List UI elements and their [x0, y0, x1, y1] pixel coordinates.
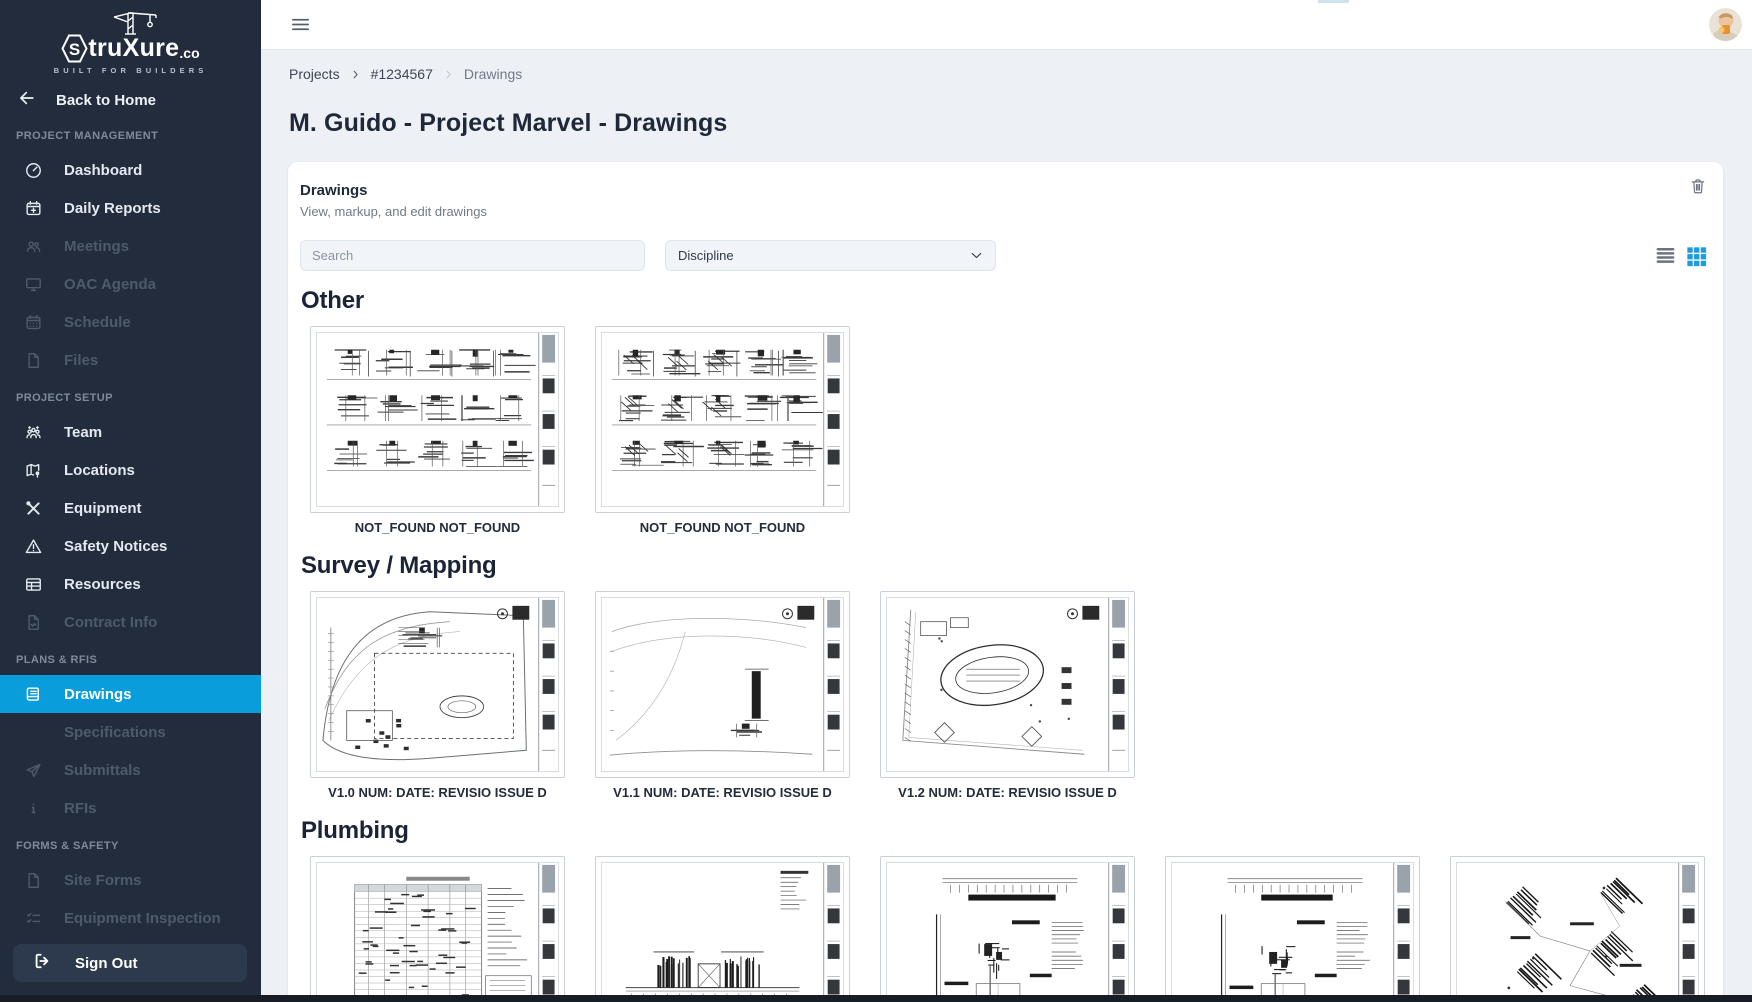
drawings-row [310, 856, 1709, 1002]
section-heading-other: Other [301, 287, 1709, 315]
drawing-item: V1.1 NUM: DATE: REVISIO ISSUE D [595, 591, 850, 801]
drawing-thumbnail[interactable] [310, 591, 565, 778]
list-view-icon[interactable] [1654, 244, 1677, 267]
drawing-label: V1.0 NUM: DATE: REVISIO ISSUE D [310, 785, 565, 801]
drawing-item: NOT_FOUND NOT_FOUND [310, 326, 565, 536]
sidebar-item-label: Drawings [64, 686, 132, 703]
sidebar-item-dashboard[interactable]: Dashboard [0, 151, 261, 189]
sidebar-item-label: Dashboard [64, 162, 142, 179]
sidebar-item-oac-agenda[interactable]: OAC Agenda [0, 265, 261, 303]
drawing-thumbnail[interactable] [1165, 856, 1420, 1002]
drawing-label: NOT_FOUND NOT_FOUND [595, 520, 850, 536]
sidebar-item-label: Locations [64, 462, 135, 479]
hexagon-s-icon: S [61, 34, 88, 63]
drawings-card: Drawings View, markup, and edit drawings… [288, 162, 1723, 1002]
sidebar-item-equipment-inspection[interactable]: Equipment Inspection [0, 899, 261, 937]
sidebar-item-label: Site Forms [64, 872, 142, 889]
sidebar-item-submittals[interactable]: Submittals [0, 751, 261, 789]
drawing-thumbnail[interactable] [880, 856, 1135, 1002]
drawings-row: V1.0 NUM: DATE: REVISIO ISSUE DV1.1 NUM:… [310, 591, 1709, 801]
sidebar-item-locations[interactable]: Locations [0, 451, 261, 489]
sidebar-item-label: Meetings [64, 238, 129, 255]
breadcrumb-drawings[interactable]: Drawings [464, 66, 522, 82]
drawing-thumbnail[interactable] [1450, 856, 1705, 1002]
drawing-thumbnail[interactable] [595, 326, 850, 513]
back-to-home-label: Back to Home [56, 92, 156, 109]
breadcrumb-projects[interactable]: Projects [289, 66, 340, 82]
grid-view-icon[interactable] [1684, 244, 1707, 267]
page-title: M. Guido - Project Marvel - Drawings [289, 109, 1752, 138]
sidebar-item-schedule[interactable]: Schedule [0, 303, 261, 341]
info-icon [23, 798, 43, 818]
sidebar-item-rfis[interactable]: RFIs [0, 789, 261, 827]
drawing-item: NOT_FOUND NOT_FOUND [595, 326, 850, 536]
people-icon [23, 236, 43, 256]
card-title: Drawings [300, 182, 487, 199]
drawing-label: NOT_FOUND NOT_FOUND [310, 520, 565, 536]
drawing-thumbnail[interactable] [595, 856, 850, 1002]
main-area: Projects #1234567 Drawings M. Guido - Pr… [261, 0, 1752, 1002]
drawing-item: V1.2 NUM: DATE: REVISIO ISSUE D [880, 591, 1135, 801]
checklist-icon [23, 908, 43, 928]
sign-out-icon [32, 951, 52, 975]
book-icon [23, 684, 43, 704]
sidebar-nav: PROJECT MANAGEMENTDashboardDaily Reports… [0, 117, 261, 937]
drawings-row: NOT_FOUND NOT_FOUNDNOT_FOUND NOT_FOUND [310, 326, 1709, 536]
hamburger-menu-icon[interactable] [289, 13, 312, 36]
card-subtitle: View, markup, and edit drawings [300, 204, 487, 219]
drawing-item: V1.0 NUM: DATE: REVISIO ISSUE D [310, 591, 565, 801]
top-edge-artifact [1318, 0, 1349, 3]
sidebar: S truXure .co BUILT FOR BUILDERS Back to… [0, 0, 261, 1002]
contract-icon [23, 612, 43, 632]
breadcrumb: Projects #1234567 Drawings [261, 50, 1752, 82]
sidebar-item-site-forms[interactable]: Site Forms [0, 861, 261, 899]
crane-icon [92, 8, 170, 36]
sidebar-item-label: Team [64, 424, 102, 441]
send-icon [23, 760, 43, 780]
sidebar-item-equipment[interactable]: Equipment [0, 489, 261, 527]
spec-icon [23, 722, 43, 742]
brand-tld: .co [179, 45, 199, 61]
chevron-right-icon [349, 68, 362, 81]
sidebar-item-label: Specifications [64, 724, 166, 741]
drawing-item [595, 856, 850, 1002]
sidebar-item-label: Equipment Inspection [64, 910, 221, 927]
bottom-edge-bar [0, 995, 1752, 1002]
calendar-plus-icon [23, 198, 43, 218]
drawing-sections: OtherNOT_FOUND NOT_FOUNDNOT_FOUND NOT_FO… [300, 287, 1709, 1002]
sidebar-item-contract-info[interactable]: Contract Info [0, 603, 261, 641]
sign-out-label: Sign Out [75, 955, 138, 972]
sidebar-item-label: Resources [64, 576, 141, 593]
drawing-item [1165, 856, 1420, 1002]
search-input[interactable] [300, 240, 645, 271]
sidebar-item-label: RFIs [64, 800, 97, 817]
trash-icon[interactable] [1687, 175, 1709, 202]
drawing-item [310, 856, 565, 1002]
warning-icon [23, 536, 43, 556]
monitor-icon [23, 274, 43, 294]
chevron-right-icon [442, 68, 455, 81]
drawing-item [1450, 856, 1705, 1002]
avatar[interactable] [1709, 8, 1742, 41]
drawing-thumbnail[interactable] [310, 326, 565, 513]
sidebar-section-label: PROJECT SETUP [0, 379, 261, 413]
sign-out-button[interactable]: Sign Out [13, 944, 247, 982]
sidebar-section-label: PLANS & RFIS [0, 641, 261, 675]
gauge-icon [23, 160, 43, 180]
brand-name: truXure [88, 34, 179, 63]
discipline-select-label: Discipline [678, 248, 734, 263]
drawing-thumbnail[interactable] [310, 856, 565, 1002]
drawing-label: V1.1 NUM: DATE: REVISIO ISSUE D [595, 785, 850, 801]
sidebar-section-label: PROJECT MANAGEMENT [0, 117, 261, 151]
sidebar-item-label: OAC Agenda [64, 276, 156, 293]
sidebar-item-specifications[interactable]: Specifications [0, 713, 261, 751]
team-icon [23, 422, 43, 442]
sidebar-item-label: Submittals [64, 762, 141, 779]
discipline-select[interactable]: Discipline [665, 240, 996, 271]
section-heading-survey-mapping: Survey / Mapping [301, 552, 1709, 580]
topbar [261, 0, 1752, 50]
drawing-label: V1.2 NUM: DATE: REVISIO ISSUE D [880, 785, 1135, 801]
sidebar-item-resources[interactable]: Resources [0, 565, 261, 603]
sidebar-item-label: Contract Info [64, 614, 157, 631]
drawing-thumbnail[interactable] [880, 591, 1135, 778]
section-heading-plumbing: Plumbing [301, 817, 1709, 845]
sidebar-item-files[interactable]: Files [0, 341, 261, 379]
sidebar-item-label: Files [64, 352, 98, 369]
breadcrumb-project-number[interactable]: #1234567 [371, 66, 433, 82]
sidebar-item-drawings[interactable]: Drawings [0, 675, 261, 713]
sidebar-item-daily-reports[interactable]: Daily Reports [0, 189, 261, 227]
sidebar-item-label: Schedule [64, 314, 131, 331]
brand-tagline: BUILT FOR BUILDERS [54, 66, 208, 75]
calendar-icon [23, 312, 43, 332]
sidebar-item-label: Safety Notices [64, 538, 167, 555]
table-icon [23, 574, 43, 594]
arrow-left-icon [17, 88, 37, 112]
drawing-item [880, 856, 1135, 1002]
sidebar-item-team[interactable]: Team [0, 413, 261, 451]
logo: S truXure .co BUILT FOR BUILDERS [0, 0, 261, 75]
sidebar-section-label: FORMS & SAFETY [0, 827, 261, 861]
drawing-thumbnail[interactable] [595, 591, 850, 778]
sidebar-item-label: Equipment [64, 500, 142, 517]
back-to-home[interactable]: Back to Home [0, 83, 261, 117]
sidebar-item-safety-notices[interactable]: Safety Notices [0, 527, 261, 565]
sidebar-item-label: Daily Reports [64, 200, 161, 217]
chevron-down-icon [968, 247, 985, 264]
sidebar-item-meetings[interactable]: Meetings [0, 227, 261, 265]
tools-icon [23, 498, 43, 518]
file-icon [23, 350, 43, 370]
form-icon [23, 870, 43, 890]
svg-text:S: S [69, 40, 80, 59]
map-pin-icon [23, 460, 43, 480]
